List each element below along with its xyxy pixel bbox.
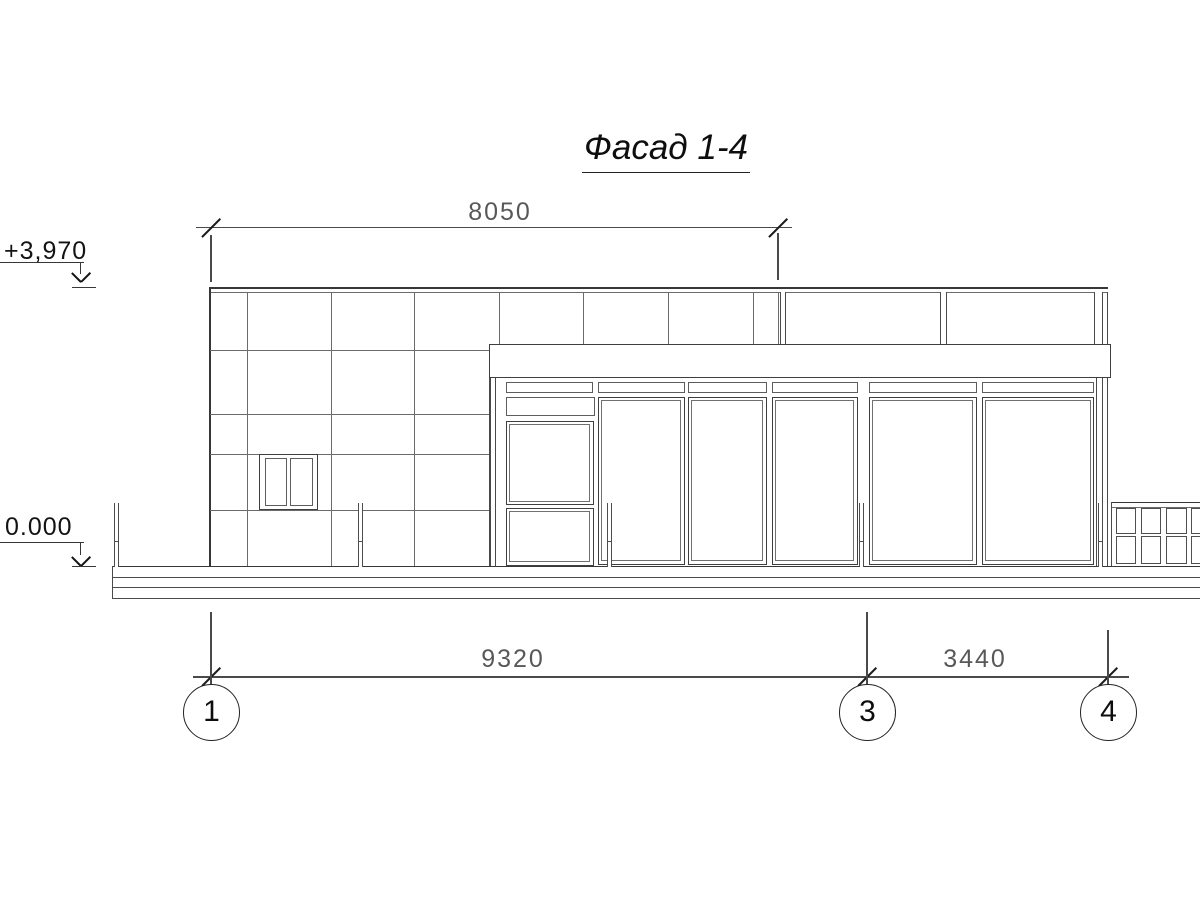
axis3-extension-line <box>866 612 867 684</box>
front-post-joint <box>1098 541 1103 542</box>
front-post <box>114 503 119 567</box>
elevation-top-leader-line <box>0 262 84 263</box>
wall-left-edge <box>209 287 211 566</box>
tile-joint-horizontal <box>210 350 490 351</box>
glass-panel <box>772 397 858 565</box>
glass-panel-inner-frame <box>601 400 682 562</box>
front-post <box>859 503 864 567</box>
axis-bubble-1: 1 <box>183 684 240 741</box>
fence-cell <box>1191 508 1200 533</box>
glass-panel-inner-frame <box>775 400 855 562</box>
tile-joint-vertical <box>331 292 332 566</box>
fence-cell <box>1166 508 1187 533</box>
fascia-return-edge <box>1107 378 1108 567</box>
front-post-joint <box>607 541 612 542</box>
transom-panel <box>869 382 977 394</box>
transom-panel <box>772 382 858 394</box>
roof-railing-end <box>1107 292 1108 344</box>
transom-panel <box>982 382 1094 394</box>
tile-joint-vertical-upper <box>753 292 754 344</box>
parapet-coping-line <box>210 287 1108 289</box>
glass-panel <box>982 397 1094 565</box>
tile-joint-vertical <box>247 292 248 566</box>
fence-cell <box>1141 508 1162 533</box>
bottom-dimension-label-right: 3440 <box>910 645 1040 674</box>
fence-cell <box>1191 536 1200 564</box>
front-post-joint <box>859 541 864 542</box>
fascia-band <box>489 344 1111 379</box>
elevation-zero-label: 0.000 <box>5 513 73 542</box>
top-dimension-extension-left <box>210 235 211 282</box>
top-dimension-extension-right <box>777 233 778 280</box>
slab-line <box>112 577 1200 578</box>
tile-joint-horizontal <box>210 454 490 455</box>
tile-joint-vertical-upper <box>583 292 584 344</box>
elevation-zero-level-tick <box>72 566 96 567</box>
transom-panel <box>506 382 593 394</box>
axis-bubble-4: 4 <box>1080 684 1137 741</box>
glass-panel-inner-frame <box>872 400 973 562</box>
entry-bay-window-inner-frame <box>509 424 591 502</box>
roof-railing-post <box>940 292 948 344</box>
elevation-zero-drop-line <box>80 542 81 555</box>
tile-joint-horizontal <box>210 414 490 415</box>
storefront-left-frame <box>489 378 490 567</box>
elevation-top-arrow-icon <box>80 272 90 282</box>
top-dimension-label: 8050 <box>435 198 565 227</box>
wall-window-pane-right <box>290 458 313 506</box>
fence-top-rail <box>1111 502 1200 503</box>
roof-railing-post <box>1094 292 1103 344</box>
slab-line <box>112 587 1200 588</box>
tile-joint-vertical-upper <box>668 292 669 344</box>
front-post <box>1098 503 1103 567</box>
transom-panel <box>688 382 767 394</box>
facade-elevation-drawing: Фасад 1-4 8050 +3,970 0.000 <box>0 0 1200 900</box>
top-dimension-line <box>196 227 792 228</box>
entry-bay-spandrel <box>506 508 594 566</box>
glass-panel-inner-frame <box>985 400 1091 562</box>
tile-joint-vertical-upper <box>499 292 500 344</box>
roof-railing-post <box>780 292 787 344</box>
storefront-left-frame-inner <box>495 378 496 567</box>
parapet-coping-inner-line <box>210 292 1108 293</box>
fence-cell <box>1116 536 1137 564</box>
axis4-extension-line <box>1107 630 1108 684</box>
drawing-title-text: Фасад 1-4 <box>582 128 750 173</box>
axis-bubble-3: 3 <box>839 684 896 741</box>
front-post <box>607 503 612 567</box>
elevation-zero-arrow-icon <box>80 556 90 566</box>
elevation-top-drop-line <box>80 262 81 274</box>
slab-left-edge <box>112 566 113 599</box>
transom-panel <box>598 382 685 394</box>
fence-left-edge <box>1111 502 1112 566</box>
bottom-dimension-line <box>193 676 1129 677</box>
parapet-railing-divider <box>778 292 779 344</box>
glass-panel-inner-frame <box>691 400 763 562</box>
fence-cell <box>1116 508 1137 533</box>
front-post-joint <box>114 541 119 542</box>
bottom-dimension-label-left: 9320 <box>448 645 578 674</box>
entry-bay-spandrel-inner-frame <box>509 511 591 562</box>
elevation-top-level-tick <box>72 287 96 288</box>
fence-cell <box>1166 536 1187 564</box>
slab-top-line <box>112 566 1200 568</box>
axis1-extension-line <box>210 612 211 684</box>
entry-bay-transom <box>506 397 595 416</box>
wall-window-pane-left <box>265 458 287 506</box>
tile-joint-horizontal <box>210 510 490 511</box>
tile-joint-vertical <box>414 292 415 566</box>
fence-cell <box>1141 536 1162 564</box>
elevation-zero-leader-line <box>0 542 84 543</box>
entry-bay-window <box>506 421 594 506</box>
slab-bottom-line <box>112 598 1200 599</box>
glass-panel <box>869 397 977 565</box>
lattice-fence <box>1111 502 1200 566</box>
drawing-title: Фасад 1-4 <box>535 128 797 173</box>
front-post-joint <box>358 541 363 542</box>
front-post <box>358 503 363 567</box>
glass-panel <box>688 397 767 565</box>
